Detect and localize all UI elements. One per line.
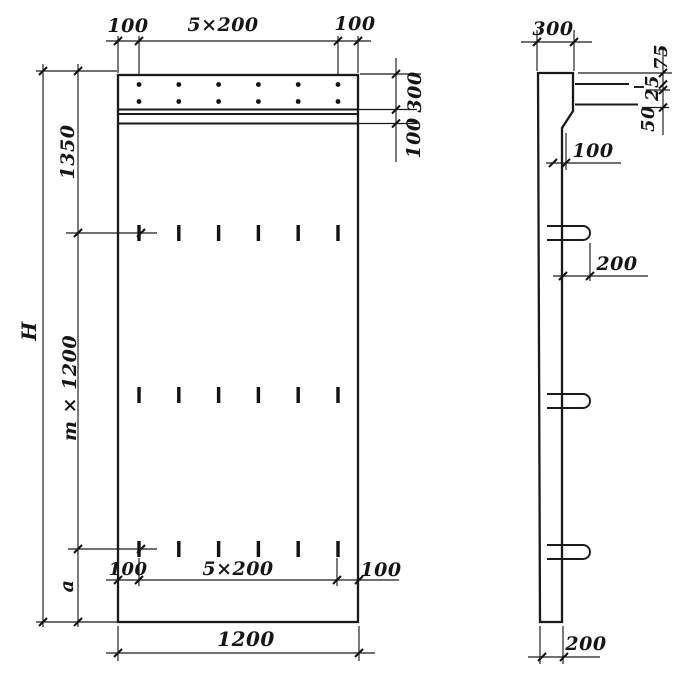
front-dim-left: 1350 H m × 1200 a <box>17 64 157 627</box>
dim-bottom-right: 100 <box>360 559 401 581</box>
dim-overall-width: 1200 <box>217 627 275 651</box>
side-dim-right-stack: 75 25 50 <box>578 44 672 135</box>
dim-side-loop: 200 <box>595 253 637 275</box>
dim-bottom-center: 5×200 <box>202 558 273 580</box>
dim-top-left: 100 <box>107 15 148 37</box>
front-panel-outline <box>118 75 358 622</box>
front-dim-right: 300 100 <box>358 58 426 162</box>
anchor-dots <box>137 82 341 104</box>
side-dim-recess: 100 <box>546 133 621 170</box>
front-dim-top: 100 5×200 100 <box>106 13 376 74</box>
front-view: 100 5×200 100 300 100 <box>17 13 426 661</box>
dim-side-top-width: 300 <box>532 18 573 40</box>
dim-overall-height: H <box>17 321 41 342</box>
side-dim-bottom: 200 <box>528 626 607 664</box>
dim-top-center: 5×200 <box>187 14 258 36</box>
dim-side-recess: 100 <box>572 140 613 162</box>
dim-lower-height: a <box>56 580 78 593</box>
slot-dashes <box>137 225 339 557</box>
dim-side-bottom-width: 200 <box>564 633 606 655</box>
dim-bottom-left: 100 <box>108 559 147 580</box>
dim-top-right: 100 <box>334 13 375 35</box>
dim-side-25: 25 <box>642 75 663 102</box>
dim-band-height: 300 <box>404 71 426 112</box>
side-dim-loop: 200 <box>553 243 648 281</box>
dim-side-75: 75 <box>651 44 672 70</box>
side-view: 300 75 25 50 100 <box>521 18 672 664</box>
dim-upper-height: 1350 <box>57 125 79 180</box>
side-dim-top: 300 <box>521 18 592 71</box>
dim-ledge-height: 100 <box>403 117 425 158</box>
technical-drawing: 100 5×200 100 300 100 <box>0 0 700 700</box>
dim-module-height: m × 1200 <box>59 335 81 441</box>
dim-side-50: 50 <box>638 106 659 132</box>
